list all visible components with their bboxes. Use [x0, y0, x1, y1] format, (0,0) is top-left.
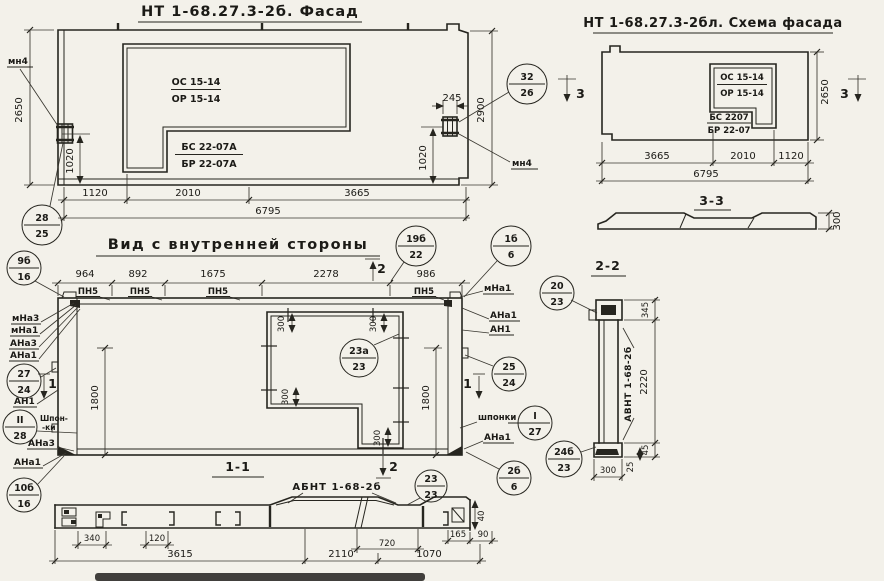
- callout-23e: 23: [424, 490, 437, 501]
- section11-element-label: АБНТ 1-68-2б: [288, 481, 396, 503]
- facade-bottom-dims: 1120 2010 3665 6795: [58, 174, 470, 221]
- inner-dim-1675: 1675: [200, 269, 225, 280]
- facade-br-label: БР 22-07А: [181, 159, 237, 170]
- section11-dims: 40 165 90 340 120 720: [49, 501, 498, 564]
- section1-label-left: 1: [48, 376, 58, 391]
- section22-dim-345: 345: [641, 302, 651, 318]
- callout-32: 32: [520, 72, 533, 83]
- callout-20: 20: [550, 281, 564, 292]
- facade-dim-2010: 2010: [175, 188, 200, 199]
- label-an1: АН1: [14, 397, 35, 407]
- win-dim-300-1: 300: [277, 316, 287, 332]
- label-shponki-left-1: Шпон-: [40, 414, 68, 423]
- section11-dim-90: 90: [478, 530, 489, 540]
- facade-window-or-label: ОР 15-14: [172, 94, 221, 105]
- section-2-2-drawing: 2-2 20 23 АВНТ 1-68-2б 345 2220 45: [540, 258, 660, 481]
- callout-16: 16: [17, 272, 31, 283]
- facade-callout-28-25: 28 25: [22, 143, 63, 245]
- callout-23c: 23: [557, 463, 570, 474]
- callout-9b: 9б: [17, 256, 31, 267]
- facade-dim-1120: 1120: [82, 188, 107, 199]
- facade-dim-2650: 2650: [14, 97, 25, 122]
- schema-bs-label: БС 2207: [709, 113, 748, 123]
- schema-os-label: ОС 15-14: [720, 73, 764, 83]
- section11-body: [55, 497, 470, 530]
- win-dim-300-3: 300: [281, 389, 291, 405]
- callout-26: 26: [520, 88, 534, 99]
- scan-shadow-artifact: [95, 573, 425, 581]
- schema-drawing: НТ 1-68.27.3-2бл. Схема фасада ОС 15-14 …: [558, 16, 866, 232]
- facade-title: НТ 1-68.27.3-2б. Фасад: [141, 4, 359, 20]
- callout-16b: 16: [17, 499, 31, 510]
- inner-dim-1800-right: 1800: [421, 345, 442, 458]
- section2-label-bottom: 2: [389, 459, 399, 474]
- facade-panel: [58, 23, 468, 185]
- facade-dim-2900: 2900: [476, 97, 487, 122]
- inner-panel: [52, 292, 468, 455]
- callout-28: 28: [35, 213, 49, 224]
- inner-callout-I-27: I 27: [508, 406, 552, 440]
- callout-2b: 2б: [507, 466, 521, 477]
- section22-dim-25: 25: [626, 462, 636, 473]
- section11-dim-340: 340: [84, 534, 100, 544]
- section11-dim-720: 720: [379, 539, 395, 549]
- inner-window-dims-300: 300 300 300 300: [277, 314, 388, 446]
- schema-section3-mark-left: 3: [558, 75, 586, 101]
- blueprint-canvas: НТ 1-68.27.3-2б. Фасад ОС 15-14 ОР 15-14…: [0, 0, 884, 581]
- facade-window-os-label: ОС 15-14: [172, 77, 221, 88]
- schema-window: ОС 15-14 ОР 15-14 БС 2207 БР 22-07: [707, 64, 776, 136]
- facade-dim-3665: 3665: [344, 188, 369, 199]
- callout-24c: 24: [502, 378, 516, 389]
- schema-dim-height: 2650: [810, 49, 831, 143]
- label-mna3: мНа3: [12, 314, 39, 324]
- facade-mn4-right-label: мн4: [512, 159, 532, 169]
- inner-callout-2b-6: 2б 6: [466, 452, 531, 495]
- schema-title: НТ 1-68.27.3-2бл. Схема фасада: [583, 16, 842, 31]
- section22-callout-20-23: 20 23: [540, 276, 597, 313]
- facade-window: ОС 15-14 ОР 15-14 БС 22-07А БР 22-07А: [123, 44, 350, 172]
- callout-I: I: [533, 411, 537, 422]
- schema-dim-6795: 6795: [693, 169, 718, 180]
- callout-25b: 25: [502, 362, 515, 373]
- schema-or-label: ОР 15-14: [720, 89, 764, 99]
- callout-27: 27: [17, 369, 30, 380]
- inner-view-drawing: Вид с внутренней стороны 964 892 1675 22…: [3, 226, 552, 512]
- schema-dim-3665: 3665: [644, 151, 669, 162]
- inner-section1-mark-right: 1: [463, 374, 485, 398]
- inner-dim-892: 892: [128, 269, 147, 280]
- facade-dim-1020-left: 1020: [65, 148, 76, 173]
- drawing-sheet: НТ 1-68.27.3-2б. Фасад ОС 15-14 ОР 15-14…: [0, 0, 884, 581]
- section11-dim-3615: 3615: [167, 549, 192, 560]
- callout-23a: 23а: [349, 346, 369, 357]
- schema-dim-2650: 2650: [820, 79, 831, 104]
- label-ana3b: АНа3: [28, 439, 55, 449]
- callout-28b: 28: [13, 431, 27, 442]
- section11-callout-23-23: 23 23: [407, 470, 447, 505]
- section11-abnt-label: АБНТ 1-68-2б: [292, 481, 381, 493]
- section-3-3: 3-3 300: [598, 193, 843, 232]
- facade-dim-1020-right: 1020: [418, 145, 429, 170]
- label-ana1b-right: АНа1: [484, 433, 511, 443]
- facade-dim-anchor-right: 1020 245: [418, 93, 468, 183]
- section-1-1-drawing: 1-1 2 АБНТ 1-68-2б 4: [49, 456, 498, 564]
- section3-label-left: 3: [576, 86, 586, 101]
- label-mna1-right: мНа1: [484, 284, 511, 294]
- inner-1800-left: 1800: [90, 385, 101, 410]
- callout-10b: 10б: [14, 483, 34, 494]
- callout-19b: 19б: [406, 234, 426, 245]
- inner-top-dims: 964 892 1675 2278 986: [52, 269, 470, 296]
- section22-avnt-label: АВНТ 1-68-2б: [623, 346, 634, 421]
- section22-dim-45: 45: [641, 445, 651, 456]
- label-ana1b: АНа1: [14, 458, 41, 468]
- schema-br-label: БР 22-07: [708, 126, 751, 136]
- section2-label-top: 2: [377, 261, 387, 276]
- section22-dim-300: 300: [600, 466, 616, 476]
- pn5-label-4: ПН5: [414, 287, 434, 297]
- callout-23a-bot: 23: [352, 362, 365, 373]
- inner-title: Вид с внутренней стороны: [108, 237, 368, 253]
- win-dim-300-2: 300: [369, 316, 379, 332]
- facade-mn4-left-label: мн4: [8, 57, 28, 67]
- facade-anchor-right-icon: [441, 117, 459, 136]
- section11-section2-mark: 2: [376, 456, 399, 478]
- callout-6b: 6: [511, 482, 518, 493]
- inner-callout-9b-16: 9б 16: [7, 251, 64, 297]
- inner-dim-964: 964: [75, 269, 94, 280]
- facade-dim-height-left: 2650: [14, 27, 54, 188]
- section11-title: 1-1: [225, 459, 251, 474]
- callout-II: II: [16, 415, 23, 426]
- facade-bs-label: БС 22-07А: [181, 142, 237, 153]
- section33-title: 3-3: [699, 193, 725, 208]
- section22-body: [589, 300, 622, 457]
- facade-dim-6795: 6795: [255, 206, 280, 217]
- facade-mark-mn4-right: мн4: [459, 134, 538, 169]
- callout-25: 25: [35, 229, 48, 240]
- inner-callout-25-24: 25 24: [465, 355, 526, 391]
- inner-dim-2278: 2278: [313, 269, 338, 280]
- section11-dim-120: 120: [149, 534, 165, 544]
- callout-24b: 24б: [554, 447, 574, 458]
- label-mna1: мНа1: [11, 326, 38, 336]
- pn5-label-2: ПН5: [130, 287, 150, 297]
- section1-label-right: 1: [463, 376, 473, 391]
- inner-section2-mark-top: 2: [365, 259, 387, 281]
- section11-dim-2110: 2110: [328, 549, 353, 560]
- section11-dim-165: 165: [450, 530, 466, 540]
- section22-title: 2-2: [595, 258, 621, 273]
- callout-23d: 23: [424, 474, 437, 485]
- section22-element-label: АВНТ 1-68-2б: [623, 328, 634, 440]
- section33-dim-300: 300: [832, 211, 843, 230]
- facade-drawing: НТ 1-68.27.3-2б. Фасад ОС 15-14 ОР 15-14…: [7, 4, 547, 245]
- pn5-label-3: ПН5: [208, 287, 228, 297]
- section11-dim-1070: 1070: [416, 549, 441, 560]
- section22-dim-2220: 2220: [639, 369, 650, 394]
- facade-callout-32-26: 32 26: [459, 64, 547, 122]
- win-dim-300-4: 300: [373, 430, 383, 446]
- facade-dim-height-right: 2900: [461, 28, 498, 188]
- callout-22: 22: [409, 250, 422, 261]
- inner-1800-right: 1800: [421, 385, 432, 410]
- schema-dim-2010: 2010: [730, 151, 755, 162]
- label-an1-right: АН1: [490, 325, 511, 335]
- callout-24: 24: [17, 385, 31, 396]
- callout-23b: 23: [550, 297, 563, 308]
- facade-dim-245: 245: [442, 93, 461, 104]
- label-ana3: АНа3: [10, 339, 37, 349]
- callout-6: 6: [508, 250, 515, 261]
- callout-1b: 1б: [504, 234, 518, 245]
- section22-callout-24b-23: 24б 23: [546, 441, 596, 477]
- section11-dim-40: 40: [477, 511, 487, 522]
- schema-panel: [602, 46, 808, 140]
- inner-callout-23a-23: 23а 23: [340, 334, 399, 377]
- label-shponki-right: шпонки: [478, 413, 516, 423]
- facade-dim-anchor-left: 1020: [62, 134, 90, 183]
- schema-section3-mark-right: 3: [840, 75, 866, 101]
- inner-dim-1800-left: 1800: [90, 345, 113, 458]
- callout-27b: 27: [528, 427, 541, 438]
- schema-dim-1120: 1120: [778, 151, 803, 162]
- schema-bottom-dims: 3665 2010 1120 6795: [596, 130, 814, 184]
- label-ana1: АНа1: [10, 351, 37, 361]
- pn5-label-1: ПН5: [78, 287, 98, 297]
- section3-label-right: 3: [840, 86, 850, 101]
- label-shponki-left-2: -ки: [42, 423, 55, 432]
- inner-dim-986: 986: [416, 269, 435, 280]
- label-ana1-right: АНа1: [490, 311, 517, 321]
